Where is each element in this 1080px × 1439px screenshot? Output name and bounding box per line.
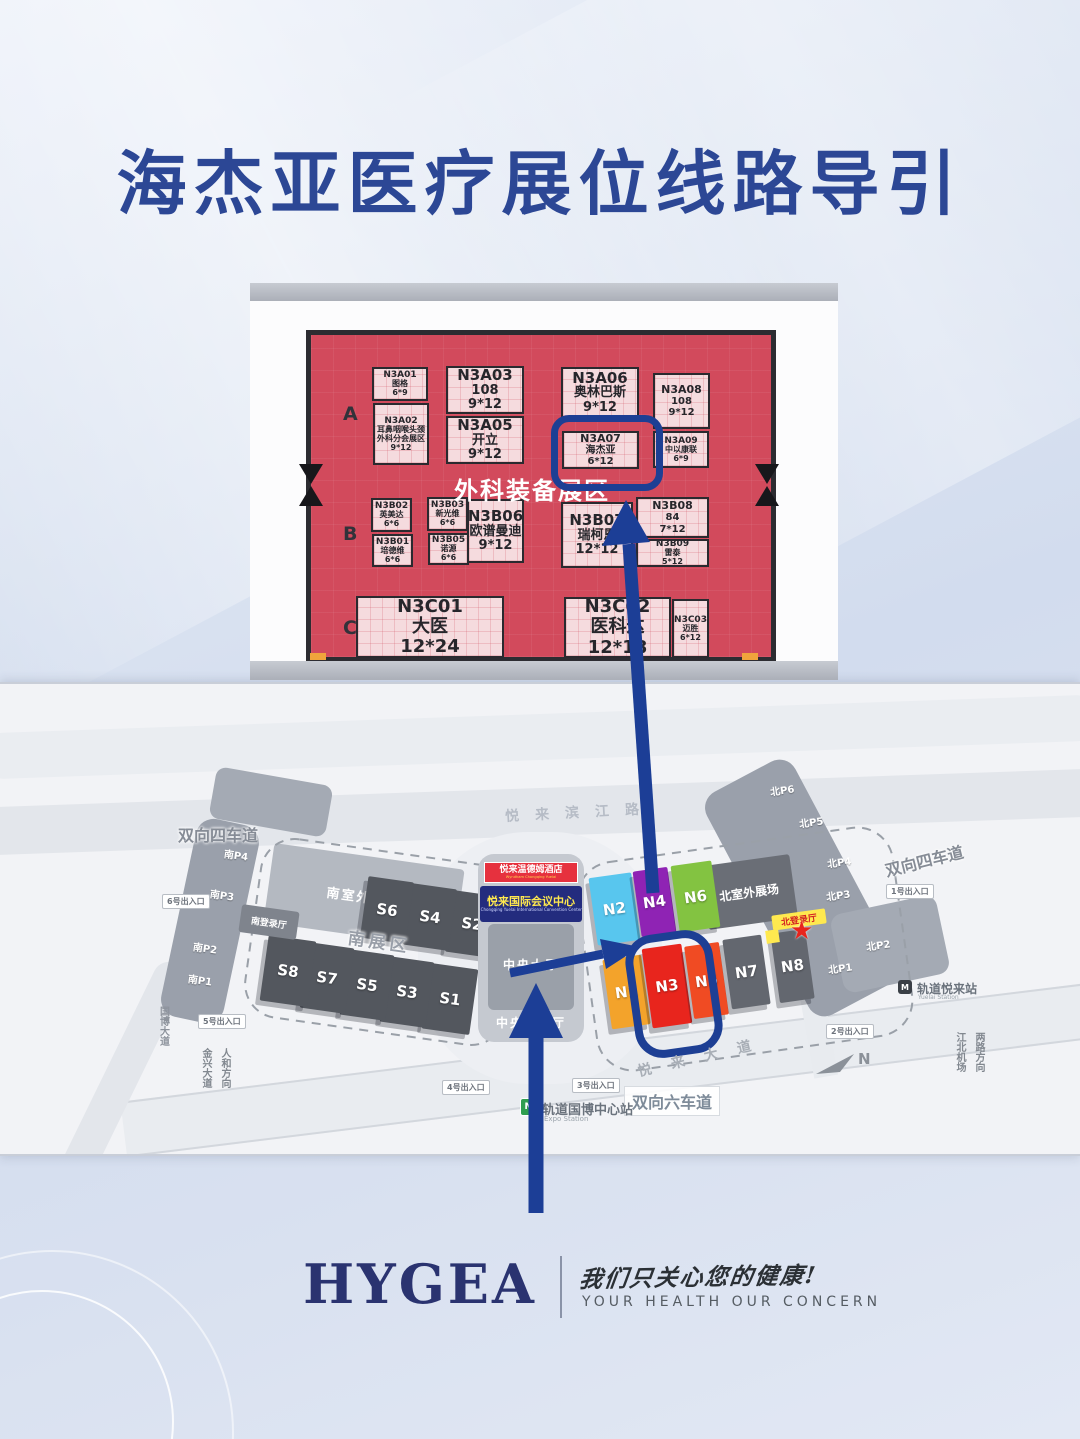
airport-direction-label: 江北机场 两路方向: [952, 1032, 986, 1072]
booth-id: N3A06: [572, 370, 627, 387]
slogan-english: YOUR HEALTH OUR CONCERN: [582, 1294, 881, 1310]
booth-N3A08: N3A081089*12: [653, 373, 710, 429]
exit-mark: [310, 653, 326, 660]
compass-arrow-icon: [816, 1048, 856, 1076]
gate-label-1: 1号出入口: [886, 884, 934, 899]
booth-N3A01: N3A01图格6*9: [372, 367, 428, 401]
booth-id: N3A08: [661, 384, 702, 396]
booth-name: 奥林巴斯: [574, 386, 626, 401]
north-registration-mark: [765, 929, 780, 944]
booth-N3B07: N3B07瑞柯恩12*12: [561, 502, 633, 568]
compass-n-label: N: [858, 1050, 871, 1068]
booth-N3C01: N3C01大医12*24: [356, 596, 504, 658]
booth-name: 耳鼻咽喉头颈外科分会展区: [375, 426, 427, 444]
booth-N3B09: N3B09雷泰5*12: [636, 539, 709, 567]
booth-name: 欧谱曼迪: [469, 525, 521, 540]
central-hall-label: 中央大厅: [488, 956, 574, 973]
hall-label: N8: [780, 955, 805, 976]
airport-label: 江北机场: [952, 1032, 967, 1072]
booth-size: 12*18: [588, 638, 648, 658]
booth-size: 5*12: [662, 558, 683, 567]
hall-N2: N2: [588, 872, 640, 945]
hall-highlight-ring: [622, 926, 726, 1061]
booth-size: 9*12: [668, 407, 694, 418]
parking-label-南P1: 南P1: [187, 970, 213, 988]
door-symbol-right: [752, 462, 782, 508]
gate-label-3: 3号出入口: [572, 1078, 620, 1093]
booth-id: N3B07: [569, 512, 624, 529]
booth-name: 大医: [412, 617, 448, 637]
booth-size: 6*6: [385, 556, 400, 565]
parking-label-南P2: 南P2: [192, 938, 218, 956]
convention-center-name-en: Chongqing Yuelai International Conventio…: [471, 908, 590, 913]
booth-N3B01: N3B01培德维6*6: [372, 534, 413, 567]
door-symbol-left: [296, 462, 326, 508]
booth-name: 瑞柯恩: [577, 529, 616, 544]
booth-name: 108: [471, 384, 498, 399]
hall-label: S3: [395, 982, 419, 1003]
booth-size: 7*12: [659, 524, 685, 535]
booth-id: N3B06: [468, 508, 523, 525]
brand-logo: HYGEA: [290, 1252, 550, 1316]
row-label-A: A: [343, 403, 358, 425]
gate-label-2: 2号出入口: [826, 1024, 874, 1039]
hall-S8: S8: [260, 935, 317, 1007]
booth-N3C02: N3C02医科达12*18: [564, 597, 671, 658]
booth-N3B05: N3B05诺源6*6: [428, 533, 469, 565]
booth-size: 9*12: [391, 444, 412, 453]
page-title: 海杰亚医疗展位线路导引: [0, 128, 1080, 229]
guobo-avenue-label: 国博大道: [156, 1006, 169, 1046]
central-registration-label: 中央登录厅: [478, 1014, 584, 1031]
booth-id: N3C01: [397, 597, 463, 617]
booth-id: N3A03: [457, 367, 512, 384]
hall-label: S4: [418, 907, 442, 928]
booth-size: 12*12: [576, 543, 619, 558]
panel-bottom-wall: [250, 661, 838, 680]
booth-name: 医科达: [591, 617, 645, 637]
booth-N3B06: N3B06欧谱曼迪9*12: [467, 499, 524, 563]
booth-size: 6*12: [680, 634, 701, 643]
booth-N3A02: N3A02耳鼻咽喉头颈外科分会展区9*12: [373, 403, 429, 465]
central-building: 悦来温德姆酒店 Wyndham Chongqing Yuelai 悦来国际会议中…: [478, 854, 584, 1042]
gate-label-4: 4号出入口: [442, 1080, 490, 1095]
booth-highlight-ring: [551, 415, 663, 491]
poster: 海杰亚医疗展位线路导引 外科装备展区 ABCN3A01图格6*9N3A02耳鼻咽…: [0, 0, 1080, 1439]
jinxing-direction-label: 金兴大道 人和方向: [198, 1048, 232, 1088]
parking-label-南P3: 南P3: [209, 885, 235, 903]
booth-location-star: ★: [790, 916, 813, 946]
expo-station-name-en: Expo Station: [544, 1115, 588, 1123]
footer-divider: [560, 1256, 562, 1318]
hall-label: N7: [734, 961, 759, 982]
jinxing-avenue-label: 金兴大道: [198, 1048, 213, 1088]
convention-center-name: 悦来国际会议中心: [487, 895, 575, 908]
metro-icon: M: [898, 980, 912, 994]
hall-label: S1: [438, 989, 462, 1010]
booth-size: 6*6: [440, 519, 455, 528]
booth-size: 12*24: [400, 637, 460, 657]
hall-label: S8: [276, 961, 300, 982]
yuelai-station: M 轨道悦来站 Yuelai Station: [898, 980, 1048, 1006]
yuelai-station-name-en: Yuelai Station: [918, 994, 959, 1001]
booth-map-floor: 外科装备展区 ABCN3A01图格6*9N3A02耳鼻咽喉头颈外科分会展区9*1…: [306, 330, 776, 662]
booth-N3A06: N3A06奥林巴斯9*12: [561, 367, 639, 418]
gate-label-5: 5号出入口: [198, 1014, 246, 1029]
booth-N3A03: N3A031089*12: [446, 366, 524, 414]
booth-name: 108: [671, 396, 692, 407]
booth-size: 6*9: [673, 455, 688, 464]
road-left-label: 双向四车道: [178, 822, 258, 846]
row-label-C: C: [343, 617, 357, 639]
hall-label: S6: [375, 900, 399, 921]
booth-size: 9*12: [583, 401, 617, 416]
exit-mark: [742, 653, 758, 660]
metro-icon: M: [520, 1098, 538, 1116]
renhe-direction-label: 人和方向: [217, 1048, 232, 1088]
site-map: 南室外展场 北室外展场 南展区 南登录厅 悦来温德姆酒店 Wyndham Cho…: [0, 682, 1080, 1156]
expo-station: M 轨道国博中心站 Expo Station: [520, 1098, 680, 1128]
booth-size: 9*12: [468, 448, 502, 463]
booth-id: N3A05: [457, 417, 512, 434]
booth-N3A05: N3A05开立9*12: [446, 416, 524, 464]
convention-center-banner: 悦来国际会议中心 Chongqing Yuelai International …: [480, 886, 582, 922]
north-compass: N: [816, 1048, 856, 1080]
booth-N3C03: N3C03迈胜6*12: [672, 599, 709, 658]
hotel-name-en: Wyndham Chongqing Yuelai: [506, 875, 556, 879]
hotel-banner: 悦来温德姆酒店 Wyndham Chongqing Yuelai: [484, 862, 578, 883]
booth-size: 9*12: [479, 539, 513, 554]
booth-name: 开立: [472, 434, 498, 449]
panel-top-wall: [250, 283, 838, 301]
hall-label: N4: [642, 891, 667, 912]
hall-label: N2: [602, 898, 627, 919]
hall-label: S7: [315, 968, 339, 989]
parking-label-南P4: 南P4: [223, 845, 249, 863]
booth-size: 6*6: [441, 554, 456, 563]
booth-id: N3C02: [585, 597, 651, 617]
hall-label: S5: [355, 975, 379, 996]
booth-map-panel: 外科装备展区 ABCN3A01图格6*9N3A02耳鼻咽喉头颈外科分会展区9*1…: [250, 283, 838, 680]
booth-size: 9*12: [468, 398, 502, 413]
booth-size: 6*9: [392, 389, 407, 398]
lianglu-direction-label: 两路方向: [971, 1032, 986, 1072]
decorative-arc: [0, 1250, 234, 1439]
row-label-B: B: [343, 523, 357, 545]
booth-name: 84: [666, 512, 680, 523]
hall-label: N6: [683, 886, 708, 907]
slogan-chinese: 我们只关心您的健康!: [578, 1256, 820, 1294]
gate-label-6: 6号出入口: [162, 894, 210, 909]
booth-size: 6*6: [384, 520, 399, 529]
